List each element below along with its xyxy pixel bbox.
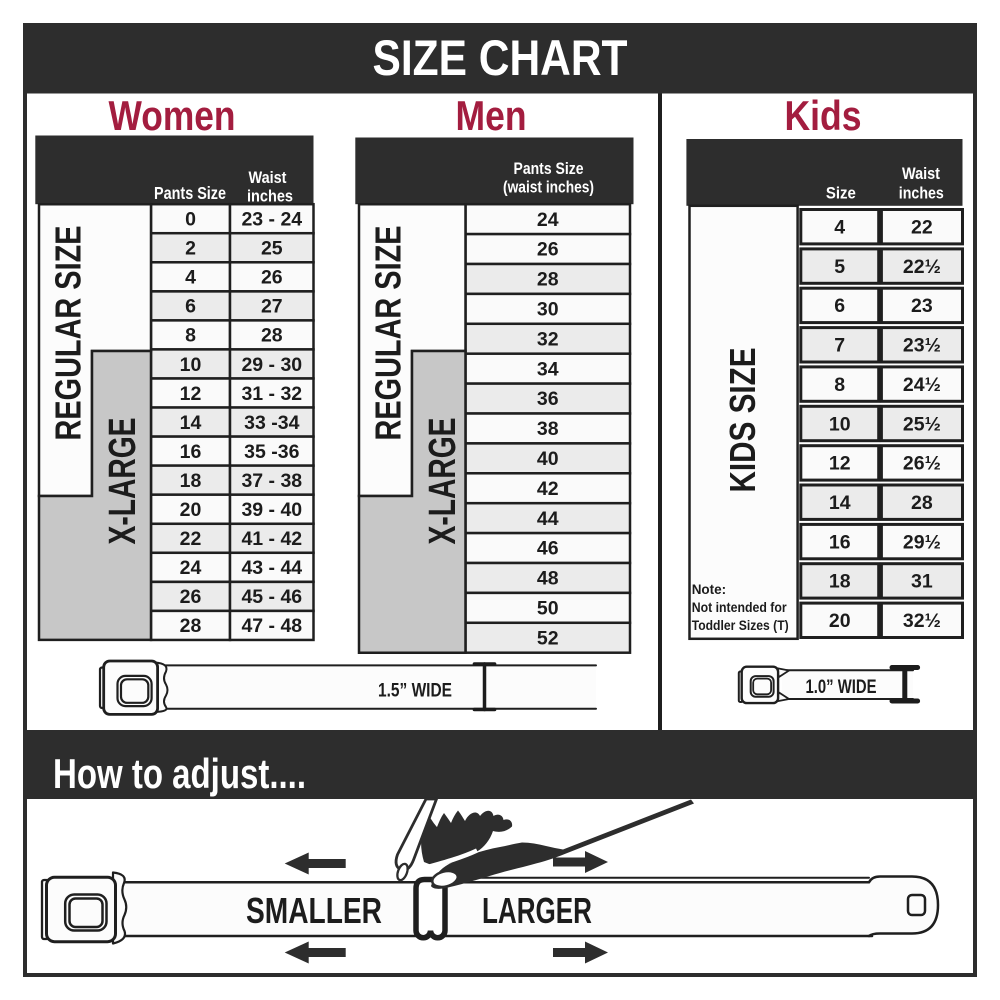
svg-text:0: 0 [185,209,196,231]
svg-text:52: 52 [537,627,559,649]
svg-text:KIDS SIZE: KIDS SIZE [722,348,763,493]
svg-text:(waist inches): (waist inches) [503,178,594,197]
svg-text:REGULAR SIZE: REGULAR SIZE [368,226,409,441]
svg-text:26½: 26½ [903,453,941,475]
svg-text:33 -34: 33 -34 [244,412,299,434]
svg-text:27: 27 [261,296,283,318]
svg-text:X-LARGE: X-LARGE [102,418,144,545]
svg-text:Kids: Kids [785,92,862,139]
svg-text:29½: 29½ [903,531,941,553]
svg-text:SIZE CHART: SIZE CHART [373,30,628,86]
svg-text:43 - 44: 43 - 44 [241,557,302,579]
svg-text:16: 16 [829,531,851,553]
svg-text:26: 26 [261,267,283,289]
svg-text:25: 25 [261,238,283,260]
svg-text:SMALLER: SMALLER [246,890,382,931]
svg-text:LARGER: LARGER [482,890,592,931]
svg-text:48: 48 [537,568,559,590]
svg-text:14: 14 [180,412,202,434]
svg-text:22: 22 [180,528,202,550]
svg-text:4: 4 [185,267,196,289]
svg-text:23½: 23½ [903,335,941,357]
svg-text:34: 34 [537,358,559,380]
svg-text:Pants Size: Pants Size [154,183,226,203]
svg-text:28: 28 [261,325,283,347]
svg-text:Men: Men [456,92,527,139]
svg-text:12: 12 [180,383,202,405]
svg-text:12: 12 [829,453,851,475]
svg-text:22½: 22½ [903,256,941,278]
svg-text:inches: inches [247,186,293,205]
svg-text:14: 14 [829,492,851,514]
svg-text:29 - 30: 29 - 30 [241,354,302,376]
svg-text:20: 20 [829,610,851,632]
svg-text:45 - 46: 45 - 46 [241,586,302,608]
svg-text:1.0” WIDE: 1.0” WIDE [806,677,877,698]
svg-text:Waist: Waist [249,168,287,187]
svg-text:6: 6 [834,295,845,317]
svg-text:32½: 32½ [903,610,941,632]
svg-text:28: 28 [537,269,559,291]
svg-text:39 - 40: 39 - 40 [241,499,302,521]
svg-text:36: 36 [537,388,559,410]
svg-text:10: 10 [829,413,851,435]
svg-text:38: 38 [537,418,559,440]
svg-text:2: 2 [185,238,196,260]
svg-text:Pants Size: Pants Size [514,159,584,178]
svg-text:23: 23 [911,295,933,317]
svg-text:32: 32 [537,328,559,350]
svg-text:18: 18 [829,571,851,593]
svg-text:inches: inches [899,184,944,203]
svg-text:23 - 24: 23 - 24 [241,209,302,231]
svg-text:31: 31 [911,571,933,593]
svg-text:How to adjust....: How to adjust.... [53,750,306,797]
svg-text:25½: 25½ [903,413,941,435]
svg-text:1.5” WIDE: 1.5” WIDE [378,681,452,702]
svg-text:18: 18 [180,470,202,492]
svg-text:22: 22 [911,217,933,239]
svg-text:4: 4 [834,217,845,239]
svg-text:46: 46 [537,538,559,560]
svg-text:Waist: Waist [902,164,940,183]
svg-text:24: 24 [537,209,559,231]
svg-text:8: 8 [185,325,196,347]
svg-text:28: 28 [911,492,933,514]
svg-text:8: 8 [834,374,845,396]
svg-text:47 - 48: 47 - 48 [241,615,302,637]
svg-text:16: 16 [180,441,202,463]
svg-text:10: 10 [180,354,202,376]
svg-text:Note:: Note: [692,582,727,597]
svg-text:31 - 32: 31 - 32 [241,383,302,405]
svg-text:35 -36: 35 -36 [244,441,299,463]
svg-text:42: 42 [537,478,559,500]
svg-text:44: 44 [537,508,559,530]
svg-text:40: 40 [537,448,559,470]
svg-text:Not intended for: Not intended for [692,600,788,615]
svg-text:REGULAR SIZE: REGULAR SIZE [48,226,89,441]
svg-text:26: 26 [537,239,559,261]
svg-text:Toddler Sizes (T): Toddler Sizes (T) [692,618,789,633]
svg-text:Size: Size [826,184,856,203]
svg-text:X-LARGE: X-LARGE [422,418,464,545]
svg-text:50: 50 [537,598,559,620]
svg-text:6: 6 [185,296,196,318]
svg-text:30: 30 [537,299,559,321]
svg-text:26: 26 [180,586,202,608]
svg-text:5: 5 [834,256,845,278]
svg-text:28: 28 [180,615,202,637]
svg-text:24: 24 [180,557,202,579]
svg-text:Women: Women [109,92,236,139]
svg-text:20: 20 [180,499,202,521]
svg-text:24½: 24½ [903,374,941,396]
svg-text:7: 7 [834,335,845,357]
svg-text:41 - 42: 41 - 42 [241,528,302,550]
svg-text:37 - 38: 37 - 38 [241,470,302,492]
